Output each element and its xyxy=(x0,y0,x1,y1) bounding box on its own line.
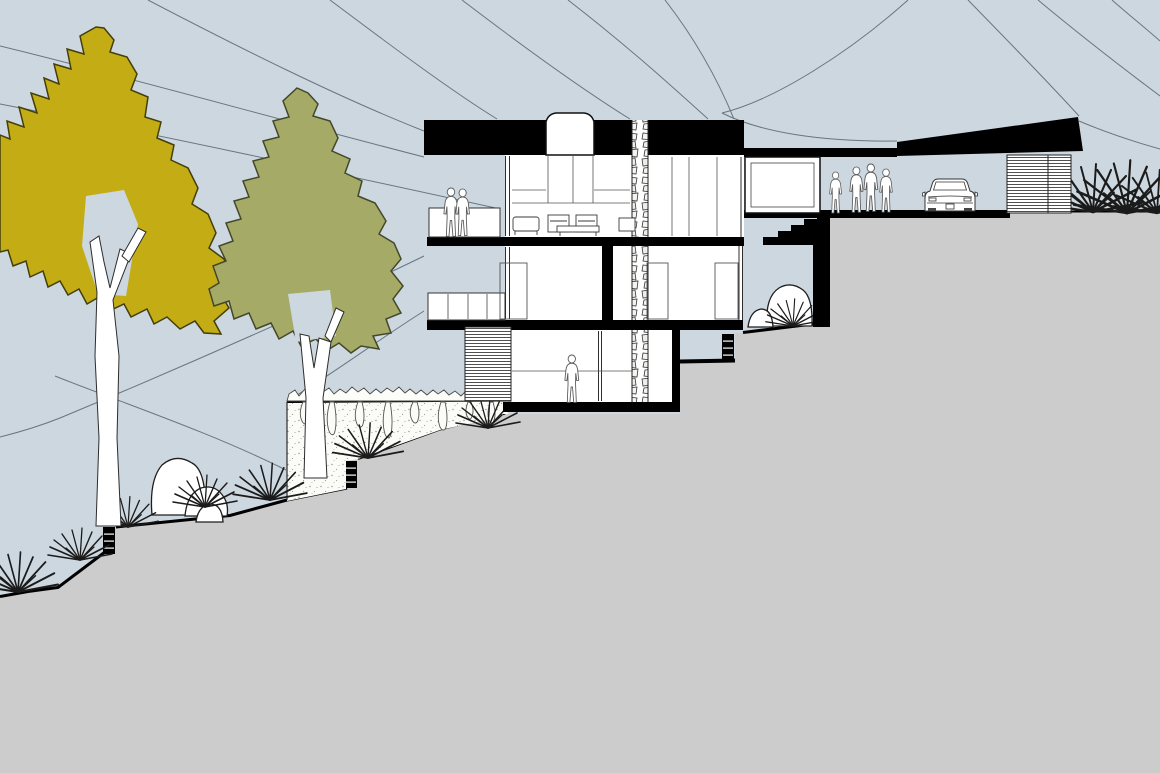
roof-skylight xyxy=(546,113,594,155)
top-floor-slab xyxy=(427,237,744,246)
entry-roof-slab xyxy=(744,148,897,157)
lower-floor-slab xyxy=(503,402,680,412)
patio-retaining-wall xyxy=(813,244,830,327)
bench xyxy=(619,218,635,231)
interior-partition-wall xyxy=(602,246,613,320)
louvered-facade-panel xyxy=(465,327,511,401)
terrace-block xyxy=(722,334,734,361)
terrace-block xyxy=(103,527,115,554)
lower-right-wall xyxy=(672,330,680,403)
stone-chimney xyxy=(632,120,648,402)
terrace-block xyxy=(345,461,357,488)
middle-floor-interior xyxy=(505,246,743,320)
carport-louvered-screen xyxy=(1007,155,1071,213)
middle-parapet-band xyxy=(428,293,505,320)
architectural-section-drawing xyxy=(0,0,1160,773)
entry-room xyxy=(745,157,820,213)
